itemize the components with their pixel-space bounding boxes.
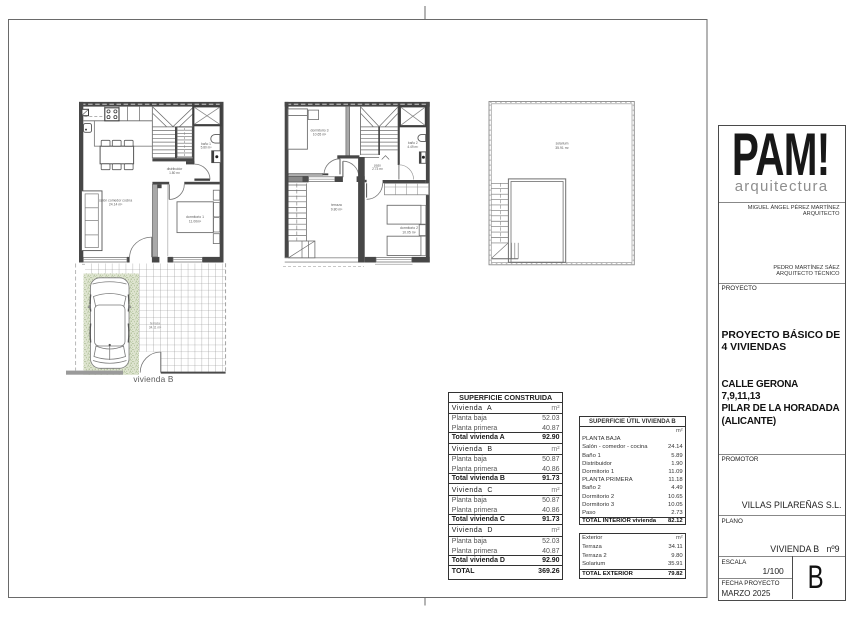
svg-text:10.05 m²: 10.05 m²: [402, 230, 416, 234]
svg-text:11.00m²: 11.00m²: [189, 219, 202, 223]
svg-text:35.91 m²: 35.91 m²: [555, 146, 569, 150]
svg-text:5.80 m²: 5.80 m²: [201, 146, 212, 150]
svg-text:34.11 m²: 34.11 m²: [149, 325, 161, 329]
svg-text:24.14 m²: 24.14 m²: [109, 203, 123, 207]
svg-text:vivienda B: vivienda B: [133, 374, 174, 384]
svg-text:10.65 m²: 10.65 m²: [313, 133, 327, 137]
svg-text:9.80 m²: 9.80 m²: [331, 207, 343, 211]
svg-text:solarium: solarium: [556, 142, 569, 146]
svg-text:1.80 m²: 1.80 m²: [169, 171, 180, 175]
svg-text:4.49 m²: 4.49 m²: [407, 145, 418, 149]
svg-text:2.73 m²: 2.73 m²: [372, 167, 383, 171]
